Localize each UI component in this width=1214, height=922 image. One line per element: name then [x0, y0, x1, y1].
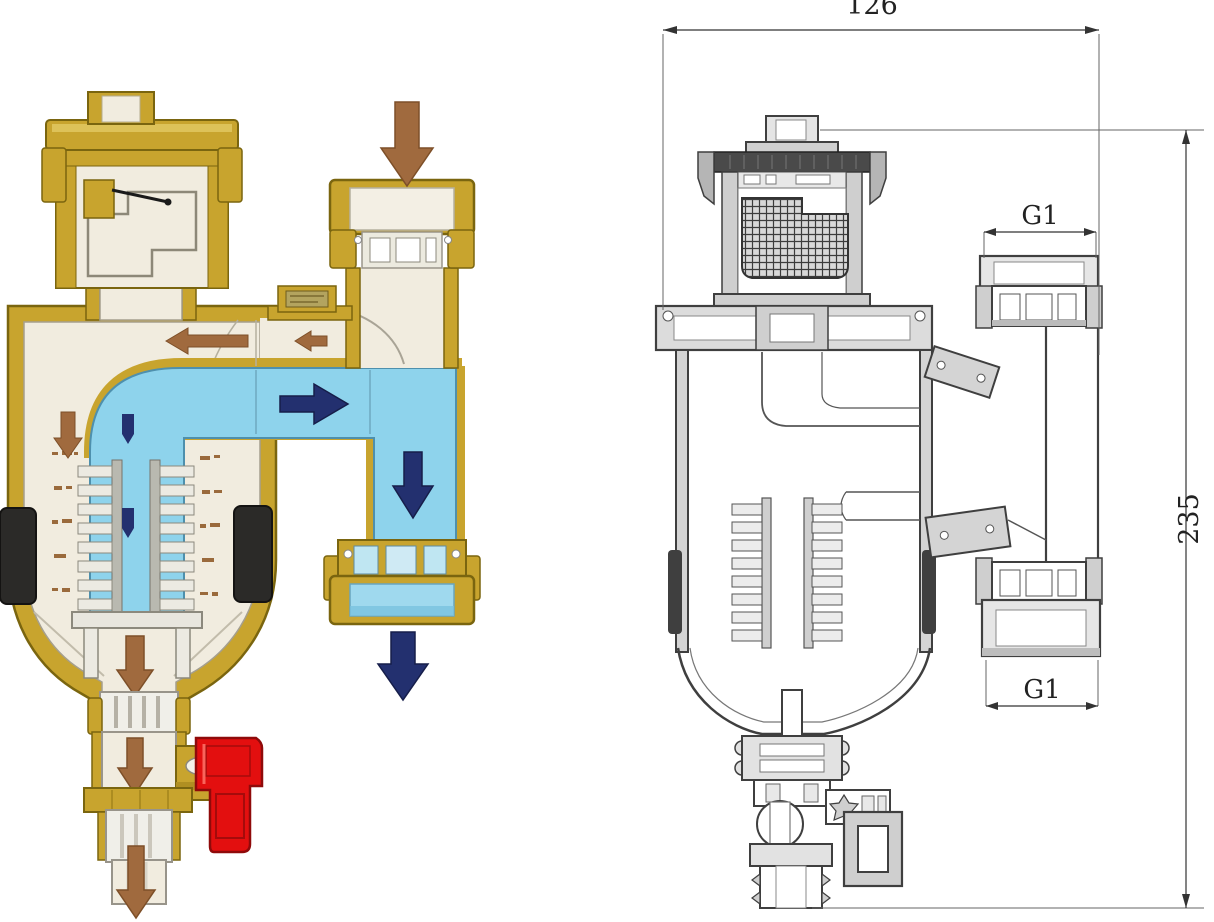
inlet-down-arrow	[381, 102, 433, 186]
drawing-vessel	[668, 350, 936, 738]
vent-valve-block	[84, 180, 114, 218]
magnet-left	[0, 508, 36, 604]
drawing-drain-valve	[735, 736, 902, 908]
dim-width-label: 126	[846, 0, 898, 21]
drawing-right-piping	[925, 256, 1102, 656]
air-vent-cutaway	[42, 92, 242, 320]
technical-drawing-figure: 126 235 G1 G1	[640, 0, 1214, 922]
outlet-down-arrow	[378, 632, 428, 700]
drain-assembly	[84, 692, 262, 918]
dim-top-port-label: G1	[1021, 201, 1058, 231]
dim-bottom-port-label: G1	[1023, 675, 1060, 705]
magnet-right	[234, 506, 272, 602]
outlet-port	[324, 540, 480, 624]
diagram-canvas: 126 235 G1 G1	[0, 0, 1214, 922]
drawing-top-flange	[656, 306, 932, 350]
dimension-bottom-port: G1	[986, 660, 1098, 710]
drawing-clamp-right	[922, 550, 936, 634]
dim-height-label: 235	[1174, 493, 1205, 545]
cutaway-figure	[0, 0, 560, 922]
dimension-top-port: G1	[984, 201, 1096, 258]
drawing-clamp-left	[668, 550, 682, 634]
